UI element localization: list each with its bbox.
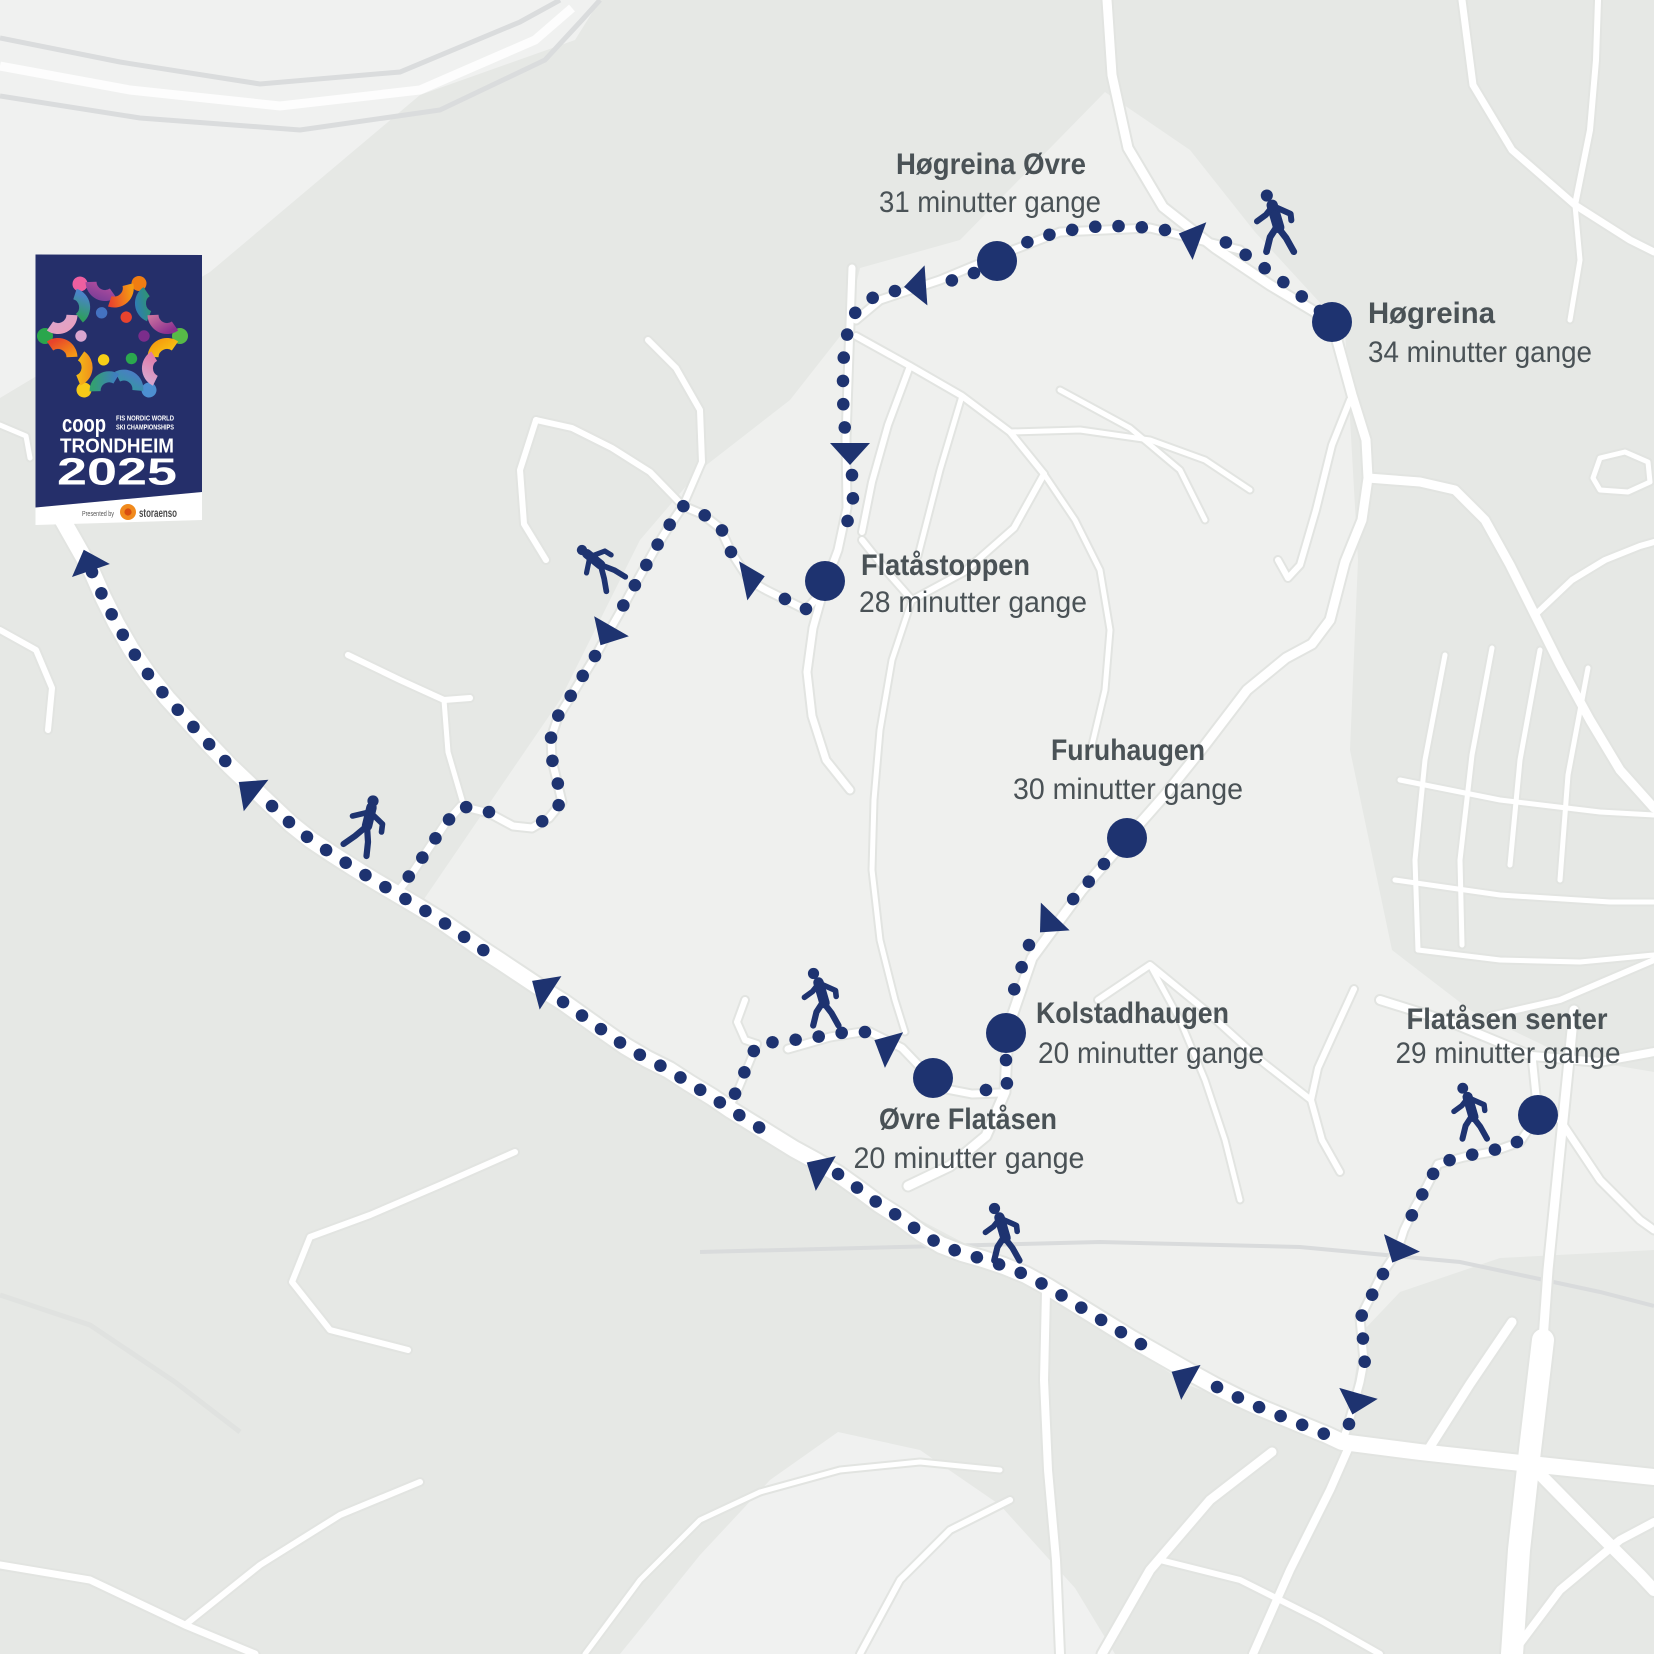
svg-text:2025: 2025 (57, 452, 177, 494)
svg-text:SKI CHAMPIONSHIPS: SKI CHAMPIONSHIPS (116, 423, 174, 432)
svg-text:Flatåstoppen: Flatåstoppen (861, 549, 1030, 582)
svg-text:30 minutter gange: 30 minutter gange (1013, 773, 1243, 806)
svg-text:31 minutter gange: 31 minutter gange (879, 186, 1101, 219)
svg-text:Flatåsen senter: Flatåsen senter (1407, 1003, 1608, 1036)
svg-text:Kolstadhaugen: Kolstadhaugen (1036, 997, 1229, 1030)
svg-text:Furuhaugen: Furuhaugen (1051, 734, 1205, 767)
svg-text:28 minutter gange: 28 minutter gange (859, 586, 1087, 619)
svg-text:FIS NORDIC WORLD: FIS NORDIC WORLD (116, 414, 174, 423)
svg-text:Presented by: Presented by (82, 509, 114, 518)
svg-text:Høgreina: Høgreina (1368, 297, 1495, 330)
svg-text:20 minutter gange: 20 minutter gange (854, 1142, 1085, 1175)
svg-text:Øvre Flatåsen: Øvre Flatåsen (879, 1103, 1057, 1136)
svg-text:20 minutter gange: 20 minutter gange (1038, 1037, 1264, 1070)
svg-text:Høgreina Øvre: Høgreina Øvre (896, 148, 1086, 181)
svg-text:34 minutter gange: 34 minutter gange (1368, 336, 1592, 369)
svg-text:storaenso: storaenso (139, 506, 177, 520)
svg-text:29 minutter gange: 29 minutter gange (1396, 1037, 1621, 1070)
